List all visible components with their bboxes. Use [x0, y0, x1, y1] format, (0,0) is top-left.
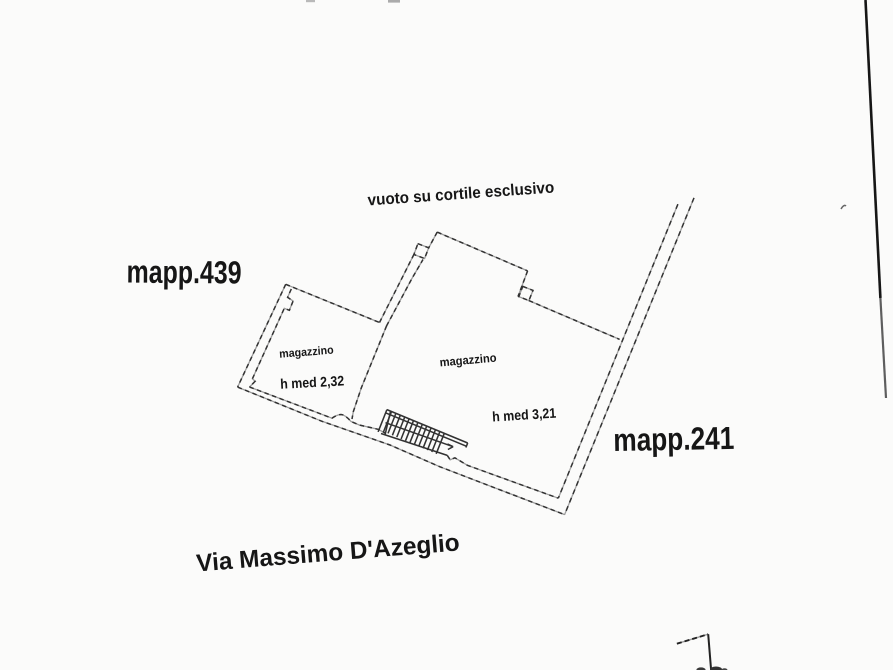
svg-text:mapp.439: mapp.439	[126, 255, 241, 292]
svg-text:h med 2,32: h med 2,32	[280, 372, 345, 391]
svg-text:mapp.241: mapp.241	[613, 421, 735, 459]
